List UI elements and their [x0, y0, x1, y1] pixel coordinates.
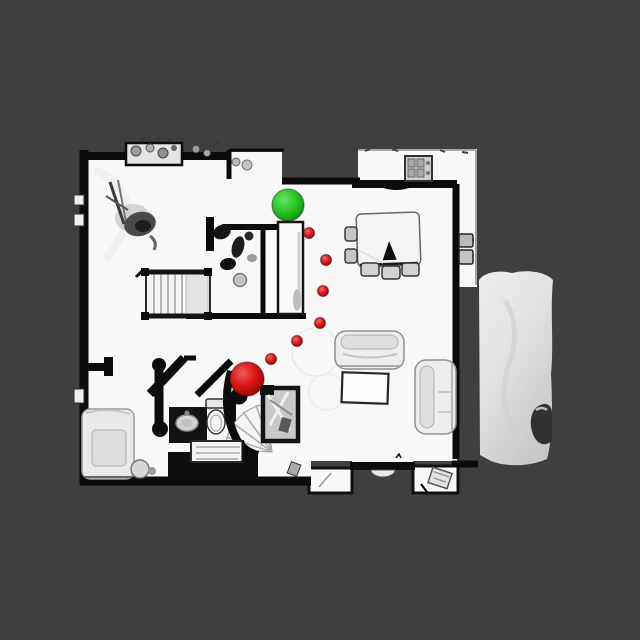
grill-block — [405, 156, 432, 181]
door-mat-frame — [260, 385, 298, 441]
dining-chair — [361, 263, 379, 276]
dining-chair — [382, 266, 400, 279]
scene-viewport[interactable] — [0, 0, 640, 640]
dining-chair — [402, 263, 419, 276]
dining-set — [356, 212, 421, 267]
coffee-table — [341, 372, 388, 404]
straight-staircase — [136, 268, 212, 320]
front-step-left — [309, 468, 352, 493]
floorplan-canvas — [0, 0, 640, 640]
path-waypoint-dot — [292, 336, 303, 347]
sofa-horizontal — [335, 331, 404, 369]
path-waypoint-dot — [304, 228, 315, 239]
path-waypoint-dot — [321, 255, 332, 266]
path-waypoint-dot — [318, 286, 329, 297]
red-sphere-marker — [230, 362, 264, 396]
path-waypoint-dot — [266, 354, 277, 365]
dining-chair — [345, 249, 357, 263]
ottoman — [131, 460, 149, 478]
green-sphere-marker — [272, 189, 304, 221]
hallway-column — [278, 222, 303, 314]
sofa-vertical — [415, 360, 456, 434]
deck-patio — [479, 271, 553, 465]
path-waypoint-dot — [315, 318, 326, 329]
dining-chair — [345, 227, 357, 241]
